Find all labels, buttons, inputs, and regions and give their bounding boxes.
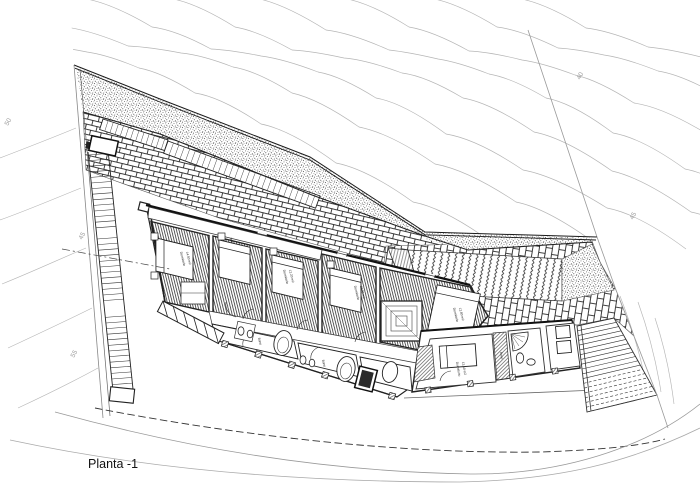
svg-text:Planta -1: Planta -1 <box>88 457 138 471</box>
